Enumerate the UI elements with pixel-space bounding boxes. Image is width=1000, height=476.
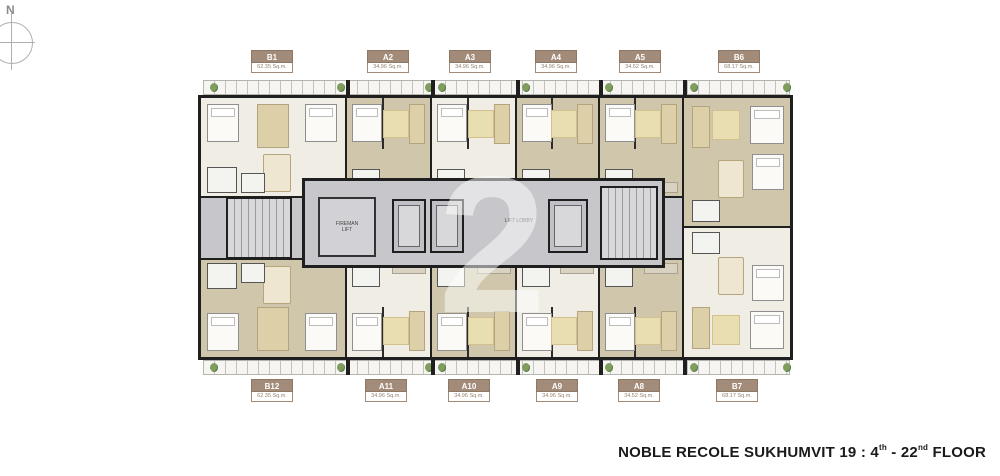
unit-label-a5: A5 34.52 Sq.m. — [619, 50, 661, 73]
stairs-left — [226, 197, 292, 259]
title-end: FLOOR — [933, 444, 987, 461]
unit-label-a2: A2 34.96 Sq.m. — [367, 50, 409, 73]
fireman-lift-label: FIREMAN LIFT — [334, 221, 360, 233]
unit-label-a8: A8 34.52 Sq.m. — [618, 379, 660, 402]
wall-stub — [599, 360, 603, 375]
wall-stub — [516, 80, 520, 95]
bathroom — [207, 263, 237, 289]
bed — [750, 106, 784, 144]
rug — [383, 110, 409, 138]
unit-code: A8 — [618, 379, 660, 392]
sofa — [494, 311, 510, 351]
bed — [752, 154, 784, 190]
plant-icon — [605, 83, 612, 91]
plant-icon — [210, 363, 217, 371]
balcony-strip-bottom — [203, 360, 790, 375]
plant-icon — [522, 363, 529, 371]
lift-cab-icon — [398, 205, 420, 247]
unit-code: B6 — [718, 50, 760, 63]
wall-stub — [516, 360, 520, 375]
compass-circle — [0, 22, 33, 64]
unit-plan-a11 — [345, 260, 430, 357]
unit-code: A9 — [536, 379, 578, 392]
rug — [551, 317, 577, 345]
rug — [551, 110, 577, 138]
unit-plan-b12 — [201, 260, 345, 357]
rug — [712, 110, 740, 140]
unit-code: B1 — [251, 50, 293, 63]
rug — [635, 317, 661, 345]
sofa — [409, 104, 425, 144]
sofa — [577, 311, 593, 351]
sofa — [661, 311, 677, 351]
bed — [752, 265, 784, 301]
sofa — [661, 104, 677, 144]
dining-table — [718, 160, 744, 198]
unit-area: 34.96 Sq.m. — [448, 392, 490, 402]
plant-icon — [605, 363, 612, 371]
title-sup-nd: nd — [918, 443, 928, 452]
unit-code: B12 — [251, 379, 293, 392]
wall-stub — [346, 360, 350, 375]
wall-stub — [683, 80, 687, 95]
plant-icon — [438, 363, 445, 371]
plant-icon — [210, 83, 217, 91]
bathroom — [692, 200, 720, 222]
bed — [605, 313, 635, 351]
dining-table — [263, 154, 291, 192]
sofa — [692, 106, 710, 148]
unit-code: A3 — [449, 50, 491, 63]
sofa — [692, 307, 710, 349]
unit-area: 34.96 Sq.m. — [365, 392, 407, 402]
bed — [437, 313, 467, 351]
title-main: NOBLE RECOLE SUKHUMVIT 19 : 4 — [618, 444, 879, 461]
unit-plan-a10 — [430, 260, 515, 357]
bed — [352, 104, 382, 142]
unit-plan-b7 — [682, 226, 790, 357]
plant-icon — [522, 83, 529, 91]
title-mid: - 22 — [891, 444, 918, 461]
unit-label-b6: B6 68.17 Sq.m. — [718, 50, 760, 73]
lift-cab-icon — [436, 205, 458, 247]
title-sup-th: th — [879, 443, 887, 452]
lift-lobby-label: LIFT LOBBY — [498, 218, 540, 224]
bathroom — [241, 173, 265, 193]
unit-label-b12: B12 62.35 Sq.m. — [251, 379, 293, 402]
rug — [712, 315, 740, 345]
wall-stub — [431, 80, 435, 95]
sofa — [494, 104, 510, 144]
unit-code: A11 — [365, 379, 407, 392]
sofa — [257, 307, 289, 351]
unit-code: B7 — [716, 379, 758, 392]
bed — [750, 311, 784, 349]
unit-area: 62.35 Sq.m. — [251, 392, 293, 402]
plant-icon — [690, 83, 697, 91]
unit-code: A2 — [367, 50, 409, 63]
unit-area: 34.52 Sq.m. — [618, 392, 660, 402]
lift-shaft — [392, 199, 426, 253]
wall-stub — [683, 360, 687, 375]
bed — [605, 104, 635, 142]
unit-label-a9: A9 34.96 Sq.m. — [536, 379, 578, 402]
stairs-right — [600, 186, 658, 260]
bed — [522, 313, 552, 351]
bed — [207, 313, 239, 351]
compass-axis-vertical — [11, 12, 12, 70]
unit-area: 34.96 Sq.m. — [536, 392, 578, 402]
dining-table — [718, 257, 744, 295]
unit-area: 34.96 Sq.m. — [535, 63, 577, 73]
bed — [207, 104, 239, 142]
unit-area: 68.17 Sq.m. — [716, 392, 758, 402]
unit-area: 34.96 Sq.m. — [449, 63, 491, 73]
unit-label-b1: B1 62.35 Sq.m. — [251, 50, 293, 73]
balcony-strip-top — [203, 80, 790, 95]
wall-stub — [599, 80, 603, 95]
plant-icon — [783, 363, 790, 371]
unit-label-a3: A3 34.96 Sq.m. — [449, 50, 491, 73]
rug — [383, 317, 409, 345]
lift-cab-icon — [554, 205, 582, 247]
plant-icon — [438, 83, 445, 91]
unit-plan-b6 — [682, 98, 790, 226]
fireman-lift-room: FIREMAN LIFT — [318, 197, 376, 257]
bathroom — [692, 232, 720, 254]
sofa — [257, 104, 289, 148]
unit-code: A4 — [535, 50, 577, 63]
bed — [305, 313, 337, 351]
unit-label-a11: A11 34.96 Sq.m. — [365, 379, 407, 402]
wall-stub — [431, 360, 435, 375]
unit-area: 68.17 Sq.m. — [718, 63, 760, 73]
unit-area: 34.52 Sq.m. — [619, 63, 661, 73]
unit-label-b7: B7 68.17 Sq.m. — [716, 379, 758, 402]
wall-stub — [346, 80, 350, 95]
unit-plan-a8 — [598, 260, 682, 357]
compass-icon: N — [0, 0, 70, 72]
compass-axis-horizontal — [0, 42, 35, 43]
bathroom — [207, 167, 237, 193]
unit-area: 34.96 Sq.m. — [367, 63, 409, 73]
rug — [468, 317, 494, 345]
floor-plan-title: NOBLE RECOLE SUKHUMVIT 19 : 4th - 22nd F… — [618, 444, 986, 461]
plant-icon — [337, 83, 344, 91]
bed — [305, 104, 337, 142]
unit-label-a4: A4 34.96 Sq.m. — [535, 50, 577, 73]
rug — [635, 110, 661, 138]
bed — [437, 104, 467, 142]
unit-code: A10 — [448, 379, 490, 392]
plant-icon — [690, 363, 697, 371]
bathroom — [241, 263, 265, 283]
bed — [352, 313, 382, 351]
unit-plan-a9 — [515, 260, 598, 357]
dining-table — [263, 266, 291, 304]
unit-label-a10: A10 34.96 Sq.m. — [448, 379, 490, 402]
lift-shaft — [430, 199, 464, 253]
sofa — [577, 104, 593, 144]
unit-area: 62.35 Sq.m. — [251, 63, 293, 73]
rug — [468, 110, 494, 138]
bed — [522, 104, 552, 142]
sofa — [409, 311, 425, 351]
lift-shaft — [548, 199, 588, 253]
plant-icon — [783, 83, 790, 91]
plant-icon — [337, 363, 344, 371]
unit-code: A5 — [619, 50, 661, 63]
